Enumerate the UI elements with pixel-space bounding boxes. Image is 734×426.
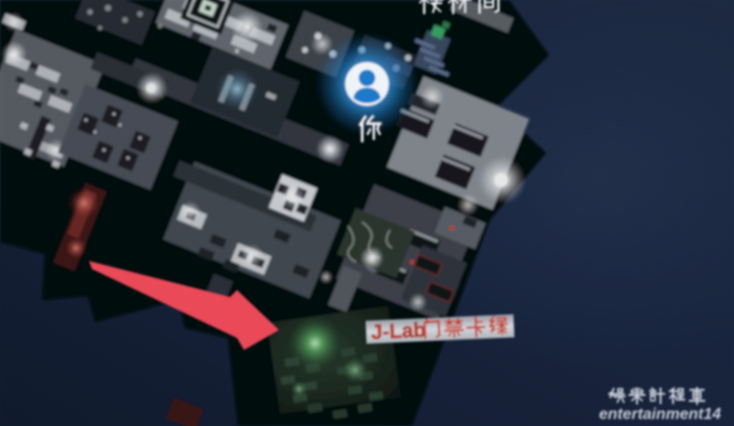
- svg-text:J-Lab: J-Lab: [371, 319, 427, 344]
- svg-text:entertainment14: entertainment14: [599, 406, 721, 423]
